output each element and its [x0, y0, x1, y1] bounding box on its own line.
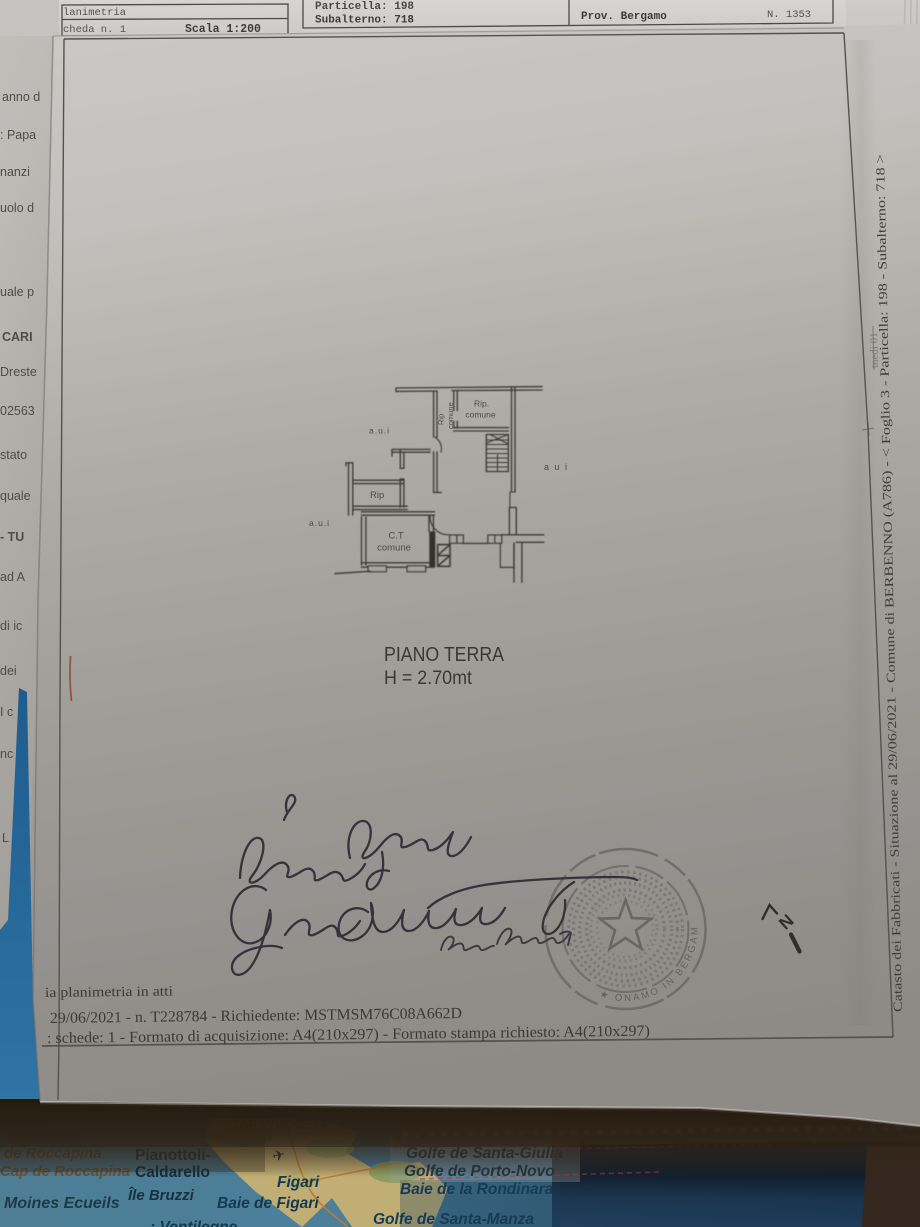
svg-text:Baie de la Rondinara: Baie de la Rondinara: [400, 1181, 554, 1198]
svg-text:dei: dei: [0, 664, 17, 678]
svg-text:ad A: ad A: [0, 570, 26, 584]
svg-text:: Ventilegne: : Ventilegne: [150, 1219, 238, 1227]
svg-text:: Papa: : Papa: [0, 128, 36, 142]
svg-text:lanimetria: lanimetria: [63, 7, 126, 19]
svg-text:Rip.: Rip.: [474, 399, 489, 409]
svg-text:a.u.i: a.u.i: [309, 518, 330, 528]
svg-text:CARI: CARI: [2, 330, 33, 344]
svg-text:Golfe de Santa-Manza: Golfe de Santa-Manza: [373, 1211, 534, 1227]
svg-text:02563: 02563: [0, 404, 35, 418]
svg-text:cheda n. 1: cheda n. 1: [63, 24, 126, 36]
svg-text:anno d: anno d: [2, 90, 40, 104]
svg-text:stato: stato: [0, 448, 27, 462]
svg-text:uale p: uale p: [0, 285, 34, 299]
svg-text:Rip: Rip: [370, 490, 384, 501]
svg-text:Rip: Rip: [437, 414, 446, 425]
svg-text:a u i: a u i: [544, 462, 569, 472]
svg-text:comune: comune: [446, 402, 455, 429]
svg-text:Moines Ecueils: Moines Ecueils: [4, 1195, 120, 1212]
svg-text:I c: I c: [0, 705, 13, 719]
svg-text:a.u.i: a.u.i: [369, 426, 390, 436]
svg-text:nc: nc: [0, 747, 13, 761]
svg-text:tnedi 01: tnedi 01: [868, 332, 881, 368]
svg-text:L: L: [2, 831, 9, 845]
svg-text:Prov. Bergamo: Prov. Bergamo: [581, 11, 667, 23]
svg-text:Subalterno: 718: Subalterno: 718: [315, 15, 414, 27]
svg-text:Baie de Figari: Baie de Figari: [217, 1195, 319, 1212]
svg-text:uolo d: uolo d: [0, 201, 34, 215]
svg-text:C.T: C.T: [388, 531, 404, 542]
svg-text:quale: quale: [0, 489, 31, 503]
svg-text:H = 2.70mt: H = 2.70mt: [384, 667, 473, 689]
svg-text:ia planimetria in atti: ia planimetria in atti: [45, 984, 173, 1001]
svg-text:N. 1353: N. 1353: [767, 9, 811, 21]
svg-text:comune: comune: [377, 543, 411, 554]
svg-text:- TU: - TU: [0, 530, 24, 544]
svg-text:di ic: di ic: [0, 619, 22, 633]
svg-text:Particella: 198: Particella: 198: [315, 1, 414, 13]
svg-text:Île Bruzzi: Île Bruzzi: [128, 1186, 195, 1204]
svg-text:nanzi: nanzi: [0, 165, 30, 179]
svg-text:comune: comune: [465, 410, 496, 420]
svg-text:PIANO TERRA: PIANO TERRA: [384, 643, 504, 666]
svg-text:Dreste: Dreste: [0, 365, 37, 379]
